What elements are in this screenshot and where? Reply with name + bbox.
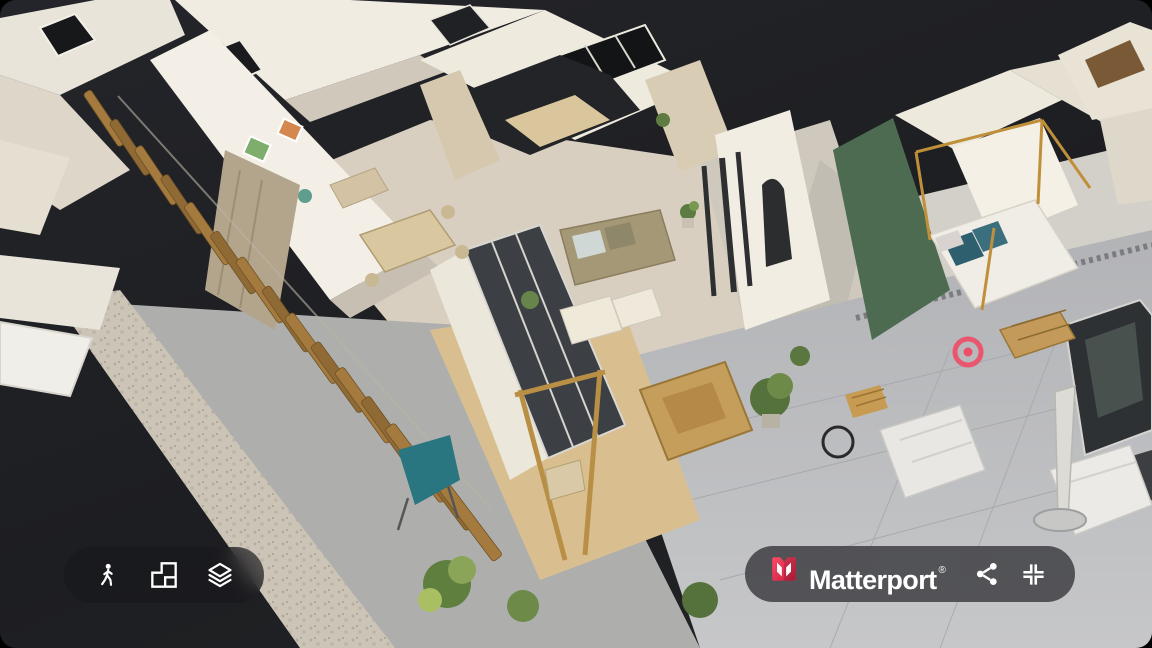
layers-icon — [205, 561, 235, 589]
floorplan-icon — [150, 561, 178, 589]
dollhouse-mode-button[interactable] — [147, 558, 181, 592]
walk-person-icon — [95, 561, 121, 589]
walk-mode-button[interactable] — [91, 558, 125, 592]
matterport-logo-link[interactable]: Matterport ® — [769, 554, 946, 595]
brand-actions — [970, 557, 1051, 591]
matterport-viewer: Matterport ® — [0, 0, 1152, 648]
share-icon — [974, 561, 1000, 587]
brand-bar: Matterport ® — [745, 546, 1075, 602]
matterport-wordmark: Matterport — [809, 565, 937, 595]
view-mode-toolbar — [64, 547, 264, 603]
collapse-icon — [1020, 561, 1047, 588]
matterport-logo-icon — [769, 554, 799, 584]
share-button[interactable] — [970, 557, 1004, 591]
floor-selector-button[interactable] — [203, 558, 237, 592]
exit-fullscreen-button[interactable] — [1017, 557, 1051, 591]
matterport-embed: Matterport ® — [0, 0, 1152, 648]
registered-trademark: ® — [939, 566, 946, 576]
